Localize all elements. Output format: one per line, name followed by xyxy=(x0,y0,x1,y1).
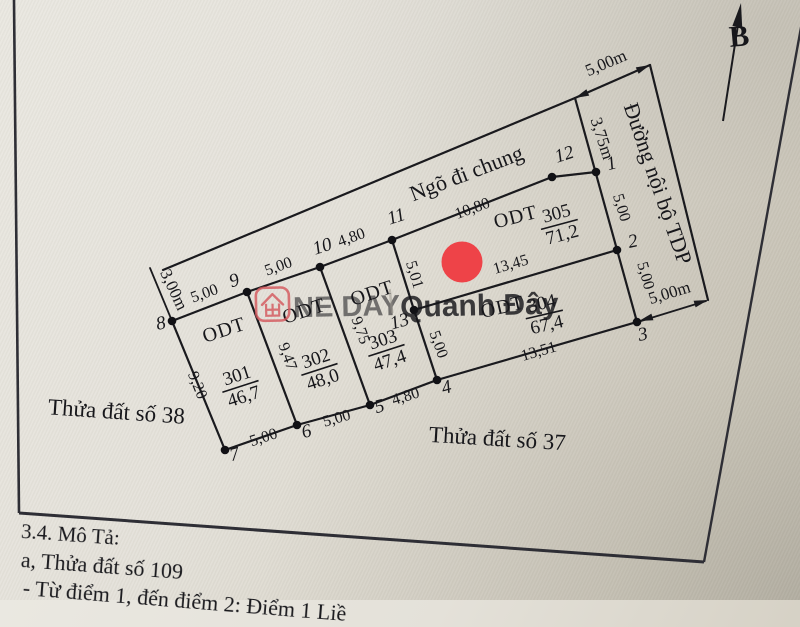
dim-9-10: 5,00 xyxy=(262,254,294,280)
point-label-11: 11 xyxy=(385,204,408,229)
dim-4-3: 13,51 xyxy=(519,339,558,365)
dim-8-7: 9,20 xyxy=(184,369,210,401)
parcel-301-use: ODT xyxy=(200,313,249,348)
dim-alley-west: 3,00m xyxy=(156,266,191,313)
watermark-brand-left: NE DAY xyxy=(293,290,401,324)
adjacent-parcel-38-label: Thửa đất số 38 xyxy=(47,394,185,428)
adjacent-parcel-37-label: Thửa đất số 37 xyxy=(428,422,566,455)
point-label-9: 9 xyxy=(227,269,243,292)
vertex-dot-8 xyxy=(168,317,177,326)
arrowhead-icon xyxy=(639,314,653,321)
point-label-6: 6 xyxy=(299,420,314,443)
dim-11-12: 10,80 xyxy=(453,195,493,223)
point-label-10: 10 xyxy=(310,234,335,260)
dim-13-2: 13,45 xyxy=(491,252,530,278)
parcel-305-fraction: 305 71,2 xyxy=(535,199,583,250)
frame-right-border xyxy=(704,0,800,562)
alley-north-edge xyxy=(163,98,575,270)
point-label-12: 12 xyxy=(552,142,577,168)
watermark-brand-right: Quanh Đây xyxy=(400,288,559,324)
dim-7-6: 5,00 xyxy=(248,425,280,450)
point-label-2: 2 xyxy=(626,230,640,253)
dim-road-width-top: 5,00m xyxy=(582,46,629,80)
dim-10-11: 4,80 xyxy=(335,225,367,251)
cadastral-diagram: B xyxy=(0,0,800,600)
segment-12-1 xyxy=(552,172,596,177)
point-label-4: 4 xyxy=(439,376,454,399)
vertex-dot-12 xyxy=(548,173,557,182)
vertex-dot-9 xyxy=(243,288,252,297)
point-label-8: 8 xyxy=(154,312,168,335)
parcel-302-fraction: 302 48,0 xyxy=(295,343,344,396)
dim-5-4: 4,80 xyxy=(390,384,422,408)
dim-9-6: 9,47 xyxy=(274,340,300,372)
point-label-3: 3 xyxy=(635,323,650,346)
arrowhead-icon xyxy=(636,65,650,74)
dim-8-9: 5,00 xyxy=(188,281,220,307)
parcel-301-fraction: 301 46,7 xyxy=(216,360,265,413)
vertex-dot-2 xyxy=(613,246,622,255)
location-marker-dot xyxy=(442,242,483,283)
dim-1-2: 5,00 xyxy=(609,192,633,224)
arrowhead-icon xyxy=(694,300,708,307)
vertex-dot-10 xyxy=(316,263,325,272)
frame-left-border xyxy=(14,0,19,513)
house-icon-body xyxy=(266,304,279,316)
alley-name-label: Ngõ đi chung xyxy=(406,140,527,206)
north-arrow: B xyxy=(723,3,751,121)
north-label: B xyxy=(728,19,751,54)
parcel-305-use: ODT xyxy=(491,201,539,233)
arrowhead-icon xyxy=(575,89,589,98)
vertex-dot-11 xyxy=(388,236,397,245)
dim-6-5: 5,00 xyxy=(321,407,353,431)
house-icon-roof xyxy=(262,294,283,305)
point-label-7: 7 xyxy=(227,443,243,466)
vertex-dot-1 xyxy=(592,168,601,177)
